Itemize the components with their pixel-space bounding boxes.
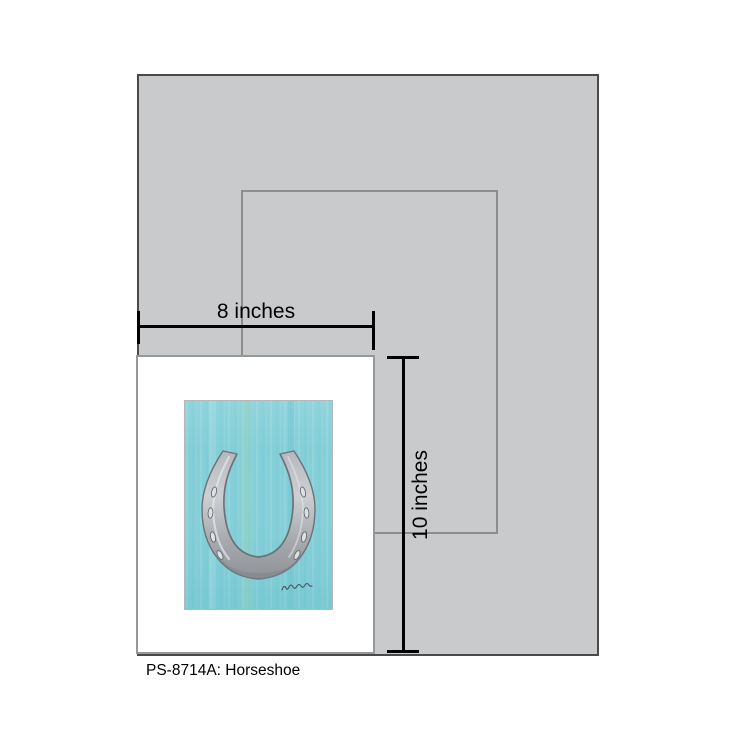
height-dimension-tick-top [387,356,419,359]
horseshoe-artwork-graphic [185,401,332,609]
print-paper [136,355,375,654]
width-dimension-label: 8 inches [137,301,375,323]
height-dimension-label: 10 inches [410,445,432,545]
height-dimension-tick-bottom [387,650,419,653]
product-size-diagram: 8 inches 10 inches PS-8714A: Horseshoe [0,0,738,738]
width-dimension-line [137,325,375,328]
artwork-image [184,400,333,610]
product-caption: PS-8714A: Horseshoe [146,662,300,680]
height-dimension-line [402,356,405,653]
